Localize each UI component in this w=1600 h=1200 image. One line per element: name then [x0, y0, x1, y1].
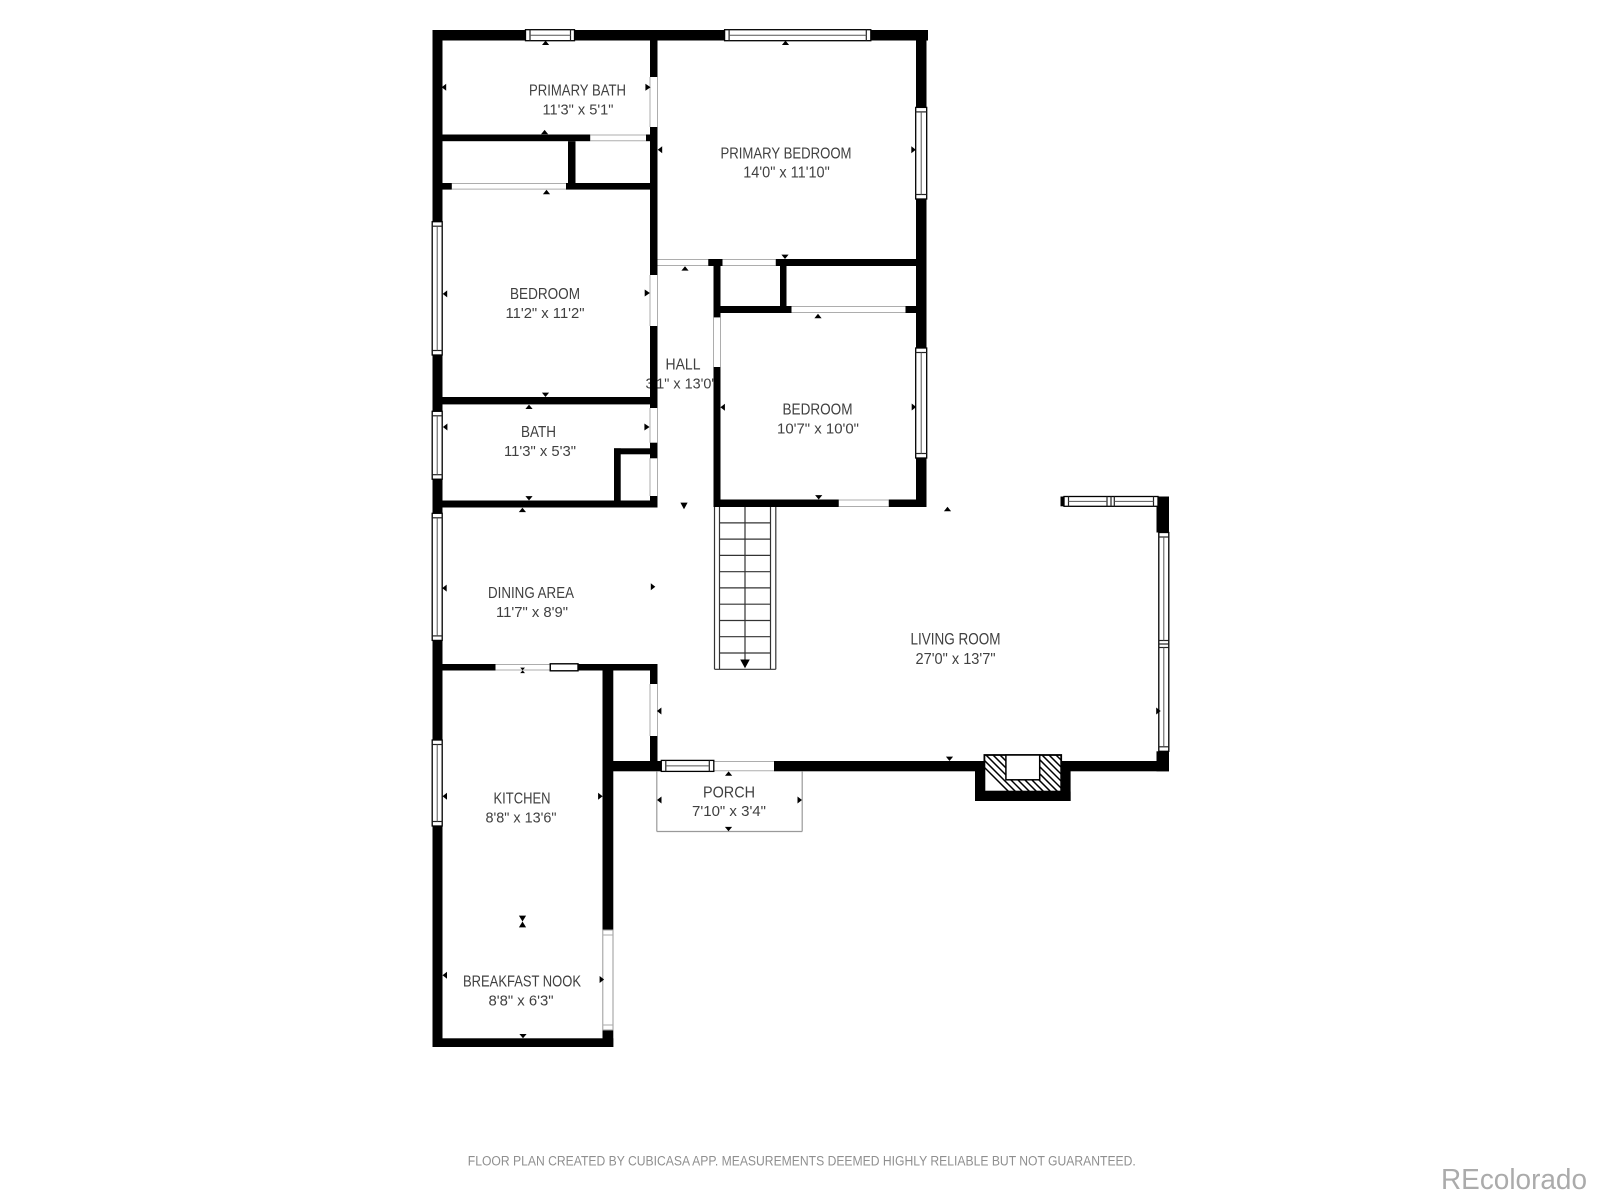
svg-text:14'0" x 11'10": 14'0" x 11'10"	[743, 165, 830, 182]
svg-text:HALL: HALL	[666, 357, 701, 374]
svg-text:8'8" x 6'3": 8'8" x 6'3"	[489, 994, 554, 1010]
svg-text:10'7" x 10'0": 10'7" x 10'0"	[777, 422, 859, 438]
svg-text:BREAKFAST NOOK: BREAKFAST NOOK	[463, 974, 582, 991]
svg-text:FLOOR PLAN CREATED BY CUBICASA: FLOOR PLAN CREATED BY CUBICASA APP. MEAS…	[468, 1154, 1136, 1169]
svg-text:11'7" x 8'9": 11'7" x 8'9"	[496, 605, 568, 621]
svg-text:11'2" x 11'2": 11'2" x 11'2"	[506, 306, 585, 322]
svg-text:BEDROOM: BEDROOM	[510, 286, 580, 303]
svg-text:BATH: BATH	[521, 424, 556, 441]
svg-text:11'3" x 5'3": 11'3" x 5'3"	[504, 444, 576, 460]
svg-text:BEDROOM: BEDROOM	[783, 402, 853, 419]
svg-text:11'3" x 5'1": 11'3" x 5'1"	[543, 103, 614, 119]
svg-text:KITCHEN: KITCHEN	[494, 791, 551, 808]
svg-text:27'0" x 13'7": 27'0" x 13'7"	[916, 651, 996, 668]
svg-text:PRIMARY BEDROOM: PRIMARY BEDROOM	[721, 146, 852, 163]
svg-text:DINING AREA: DINING AREA	[488, 585, 575, 602]
svg-text:PORCH: PORCH	[703, 785, 755, 802]
svg-text:REcolorado: REcolorado	[1441, 1164, 1587, 1196]
svg-text:LIVING ROOM: LIVING ROOM	[911, 631, 1001, 649]
svg-text:7'10" x 3'4": 7'10" x 3'4"	[692, 804, 766, 820]
svg-text:PRIMARY BATH: PRIMARY BATH	[529, 83, 626, 100]
svg-text:8'8" x 13'6": 8'8" x 13'6"	[486, 811, 557, 827]
